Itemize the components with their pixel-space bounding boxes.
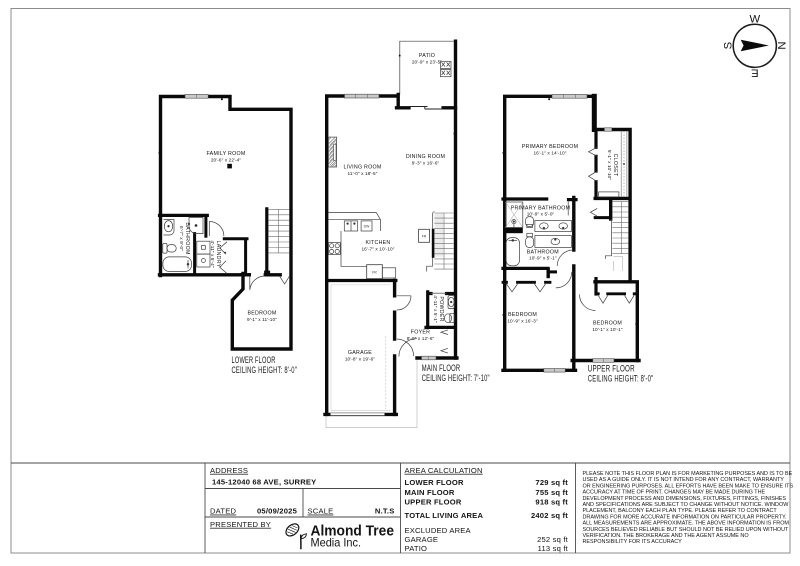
svg-text:FR: FR [422, 235, 427, 239]
svg-text:PLACEMENT, BALCONY EACH PLAN T: PLACEMENT, BALCONY EACH PLAN TYPE. PLEAS… [583, 508, 778, 514]
svg-text:DW: DW [364, 225, 370, 229]
svg-text:BEDROOM: BEDROOM [247, 311, 276, 317]
svg-text:FR: FR [372, 271, 377, 275]
svg-text:SCALE: SCALE [308, 507, 334, 516]
svg-text:USED AS A GUIDE ONLY. IT IS NO: USED AS A GUIDE ONLY. IT IS NOT INTEND F… [583, 477, 785, 483]
svg-text:MAIN FLOOR: MAIN FLOOR [422, 363, 461, 373]
svg-text:PATIO: PATIO [405, 544, 428, 553]
svg-text:DATED: DATED [210, 507, 236, 516]
svg-text:10'-1" x 10'-1": 10'-1" x 10'-1" [592, 327, 623, 332]
svg-text:ADDRESS: ADDRESS [210, 466, 248, 475]
svg-text:CEILING HEIGHT: 7'-10": CEILING HEIGHT: 7'-10" [422, 373, 490, 383]
svg-text:252 sq ft: 252 sq ft [537, 535, 569, 544]
svg-text:145-12040 68 AVE, SURREY: 145-12040 68 AVE, SURREY [212, 478, 316, 487]
svg-text:9'-3" x 16'-6": 9'-3" x 16'-6" [412, 161, 440, 166]
svg-text:KITCHEN: KITCHEN [366, 240, 391, 246]
svg-text:N: N [775, 42, 787, 50]
svg-text:20'-6" x 22'-4": 20'-6" x 22'-4" [211, 158, 242, 163]
svg-text:CEILING HEIGHT: 8'-0": CEILING HEIGHT: 8'-0" [588, 374, 654, 384]
svg-text:ALL MEASUREMENTS ARE APPROXIMA: ALL MEASUREMENTS ARE APPROXIMATE. THE AB… [583, 521, 790, 527]
svg-text:TOTAL LIVING AREA: TOTAL LIVING AREA [405, 511, 484, 520]
svg-text:DINING ROOM: DINING ROOM [406, 154, 445, 160]
svg-text:FOYER: FOYER [411, 330, 431, 336]
svg-text:10'-8" x 19'-6": 10'-8" x 19'-6" [345, 357, 376, 362]
svg-text:LIVING ROOM: LIVING ROOM [343, 165, 381, 171]
svg-text:05/09/2025: 05/09/2025 [257, 507, 298, 516]
svg-text:BEDROOM: BEDROOM [508, 312, 537, 318]
svg-text:BEDROOM: BEDROOM [593, 321, 622, 327]
svg-text:CEILING HEIGHT: 8'-0": CEILING HEIGHT: 8'-0" [232, 365, 298, 375]
svg-text:EXCLUDED AREA: EXCLUDED AREA [405, 526, 472, 535]
svg-text:918 sq ft: 918 sq ft [535, 497, 568, 506]
svg-text:10'-9" x 5'-1": 10'-9" x 5'-1" [529, 256, 557, 261]
svg-text:MAIN FLOOR: MAIN FLOOR [405, 488, 455, 497]
svg-text:PRESENTED BY: PRESENTED BY [210, 520, 271, 529]
svg-text:20'-9" x 23'-5": 20'-9" x 23'-5" [412, 60, 443, 65]
svg-text:PATIO: PATIO [419, 53, 435, 59]
svg-text:DEVELOPMENT PROCESS AND DIMENS: DEVELOPMENT PROCESS AND DIMENSIONS, FIXT… [583, 496, 787, 502]
svg-text:ACCURACY AT TIME OF PRINT. CHA: ACCURACY AT TIME OF PRINT. CHANGES MAY B… [583, 490, 766, 496]
svg-text:W: W [749, 13, 760, 25]
svg-text:LOWER FLOOR: LOWER FLOOR [232, 355, 276, 365]
svg-text:GARAGE: GARAGE [348, 350, 372, 356]
svg-text:PRIMARY BEDROOM: PRIMARY BEDROOM [522, 144, 579, 150]
svg-text:UPPER FLOOR: UPPER FLOOR [405, 497, 462, 506]
svg-text:VERIFICATION. THE BROKERAGE AN: VERIFICATION. THE BROKERAGE AND THE AGEN… [583, 533, 749, 539]
svg-text:11'-0" x 18'-5": 11'-0" x 18'-5" [348, 171, 378, 176]
svg-text:PLEASE NOTE THIS FLOOR PLAN IS: PLEASE NOTE THIS FLOOR PLAN IS FOR MARKE… [583, 471, 793, 477]
svg-text:E: E [751, 67, 759, 79]
svg-text:AREA CALCULATION: AREA CALCULATION [405, 466, 483, 475]
svg-text:OR ENGINEERING PURPOSES. ALL E: OR ENGINEERING PURPOSES. ALL EFFORTS HAV… [583, 483, 794, 489]
svg-text:16'-7" x 10'-10": 16'-7" x 10'-10" [361, 247, 394, 252]
svg-text:UPPER FLOOR: UPPER FLOOR [588, 364, 635, 374]
svg-text:16'-1" x 14'-10": 16'-1" x 14'-10" [533, 151, 566, 156]
svg-text:8'-0" x 12'-6": 8'-0" x 12'-6" [407, 336, 435, 341]
svg-text:6'-7" x 9'-0": 6'-7" x 9'-0" [179, 226, 184, 251]
svg-text:729 sq ft: 729 sq ft [535, 478, 568, 487]
svg-text:4'-11" x 5'-1": 4'-11" x 5'-1" [433, 295, 438, 323]
svg-text:S: S [723, 41, 735, 49]
svg-text:DRAWING FOR MORE ACCURATE INFO: DRAWING FOR MORE ACCURATE INFORMATION ON… [583, 514, 788, 520]
svg-text:RESPONSIBILITY FOR ITS ACCURAC: RESPONSIBILITY FOR ITS ACCURACY [583, 539, 683, 545]
svg-text:2402 sq ft: 2402 sq ft [531, 511, 568, 520]
svg-text:Media Inc.: Media Inc. [311, 536, 362, 549]
svg-text:5'-1" x 10'-10": 5'-1" x 10'-10" [607, 150, 612, 181]
svg-text:755 sq ft: 755 sq ft [535, 488, 568, 497]
svg-text:4'-11" x 5'-4": 4'-11" x 5'-4" [210, 240, 215, 268]
svg-text:FAMILY ROOM: FAMILY ROOM [206, 151, 245, 157]
svg-text:N.T.S: N.T.S [375, 507, 395, 516]
svg-text:10'-9" x 16'-3": 10'-9" x 16'-3" [507, 319, 538, 324]
svg-text:113 sq ft: 113 sq ft [538, 544, 569, 553]
svg-text:10'-9" x 5'-0": 10'-9" x 5'-0" [527, 212, 555, 217]
svg-text:GARAGE: GARAGE [405, 535, 439, 544]
svg-text:9'-1" x 11'-10": 9'-1" x 11'-10" [247, 317, 277, 322]
svg-text:AND SPECIFICATIONS ARE SUBJECT: AND SPECIFICATIONS ARE SUBJECT TO CHANGE… [583, 502, 790, 508]
svg-text:SOURCES BELIEVED RELIABLE BUT: SOURCES BELIEVED RELIABLE BUT SHOULD NOT… [583, 527, 790, 533]
svg-text:LOWER FLOOR: LOWER FLOOR [405, 478, 464, 487]
